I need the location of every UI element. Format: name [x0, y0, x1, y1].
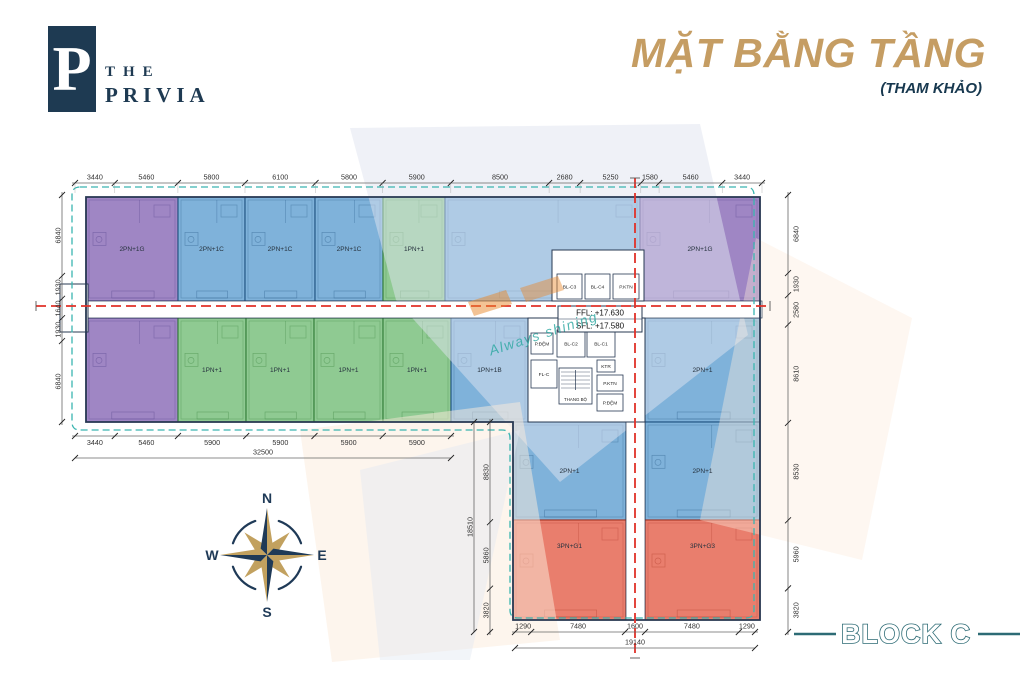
dim-total-label: 19140	[625, 638, 645, 647]
unit-label: 1PN+1B	[477, 367, 501, 374]
dim-label: 5460	[683, 173, 699, 182]
block-label-wrap: BLOCK C	[792, 610, 1022, 661]
floor-plan-drawing: BL-C3BL-C4P.KTNP.ĐỆMBL-C2BL-C1FL-CKTRP.K…	[0, 0, 1024, 689]
unit-label: 2PN+1	[692, 367, 712, 374]
core-room-label: KTR	[601, 364, 611, 370]
dim-label: 2580	[792, 302, 801, 318]
dim-label: 8530	[792, 464, 801, 480]
unit-label: 1PN+1	[202, 367, 222, 374]
dim-label: 5860	[482, 547, 491, 563]
dim-label: 7480	[684, 622, 700, 631]
block-label-svg: BLOCK C	[792, 610, 1022, 656]
core-room-label: THANG BỘ	[564, 397, 588, 402]
dim-label: 1600	[627, 622, 643, 631]
dim-label: 6100	[272, 173, 288, 182]
core-room-label: P.KTN	[619, 285, 633, 291]
compass-point	[267, 508, 273, 555]
unit-label: 2PN+1C	[268, 246, 293, 253]
dim-label: 8830	[482, 464, 491, 480]
unit-label: 2PN+1G	[119, 246, 144, 253]
unit-label: 3PN+G1	[557, 543, 582, 550]
dim-label: 5460	[138, 173, 154, 182]
unit-label: 2PN+1	[559, 468, 579, 475]
dim-label: 1290	[739, 622, 755, 631]
core-room-label: BL-C2	[564, 342, 578, 348]
compass-e: E	[317, 547, 326, 563]
dim-total-label: 18510	[466, 517, 475, 537]
unit-label: 1PN+1	[270, 367, 290, 374]
block-label-text: BLOCK C	[841, 619, 971, 649]
core-room-label: P.KTN	[603, 381, 617, 387]
compass-s: S	[262, 604, 271, 620]
dim-label: 5900	[341, 438, 357, 447]
dim-label: 5800	[341, 173, 357, 182]
unit-label: 1PN+1	[338, 367, 358, 374]
dim-label: 1290	[515, 622, 531, 631]
core-room-label: BL-C1	[594, 342, 608, 348]
unit-label: 3PN+G3	[690, 543, 715, 550]
dim-label: 5960	[792, 546, 801, 562]
dim-label: 5900	[272, 438, 288, 447]
unit-label: 1PN+1	[404, 246, 424, 253]
core-room-label: BL-C4	[591, 285, 605, 291]
dim-label: 6840	[792, 226, 801, 242]
dim-label: 7480	[570, 622, 586, 631]
unit-label: 2PN+1	[692, 468, 712, 475]
unit-label: 2PN+1C	[337, 246, 362, 253]
dim-label: 5460	[138, 438, 154, 447]
compass-rose: NESW	[205, 490, 326, 620]
dim-label: 3440	[87, 438, 103, 447]
dim-label: 3440	[734, 173, 750, 182]
corridor-horizontal	[86, 301, 762, 318]
unit-label: 2PN+1C	[199, 246, 224, 253]
page: P THE PRIVIA MẶT BẰNG TẦNG (THAM KHẢO) B…	[0, 0, 1024, 689]
dim-label: 5800	[203, 173, 219, 182]
dim-label: 5900	[409, 173, 425, 182]
core-room-label: BL-C3	[563, 285, 577, 291]
dim-label: 1930	[792, 276, 801, 292]
unit-label: 2PN+1G	[687, 246, 712, 253]
dim-label: 5900	[409, 438, 425, 447]
compass-point	[267, 549, 314, 555]
dim-label: 2680	[557, 173, 573, 182]
dim-label: 3440	[87, 173, 103, 182]
dim-label: 1580	[642, 173, 658, 182]
dim-total-label: 32500	[253, 448, 273, 457]
core-room-label: FL-C	[539, 372, 550, 378]
dim-label: 8610	[792, 366, 801, 382]
compass-w: W	[205, 547, 219, 563]
dim-label: 5250	[602, 173, 618, 182]
compass-point	[261, 508, 267, 555]
dim-label: 1640	[54, 301, 63, 317]
dim-label: 6840	[54, 374, 63, 390]
west-lobby-stub	[60, 284, 88, 332]
compass-point	[261, 555, 267, 602]
dim-label: 5900	[204, 438, 220, 447]
compass-point	[220, 555, 267, 561]
dim-label: 1930	[54, 279, 63, 295]
compass-n: N	[262, 490, 272, 506]
dim-label: 8500	[492, 173, 508, 182]
dim-label: 3820	[482, 602, 491, 618]
unit-block-purple	[86, 318, 178, 422]
compass-point	[220, 549, 267, 555]
dim-label: 6840	[54, 227, 63, 243]
unit-label: 1PN+1	[407, 367, 427, 374]
unit-block-3PN+G3	[645, 520, 760, 620]
compass-point	[267, 555, 273, 602]
dim-label: 1930	[54, 322, 63, 338]
compass-point	[267, 555, 314, 561]
